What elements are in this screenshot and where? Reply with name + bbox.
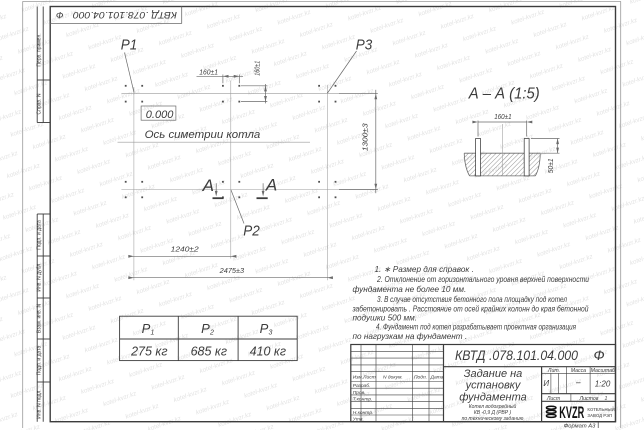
svg-text:Р1: Р1: [121, 38, 138, 54]
svg-text:Разраб.: Разраб.: [353, 383, 371, 389]
svg-text:фундамента: фундамента: [459, 391, 527, 403]
svg-text:А – А (1:5): А – А (1:5): [468, 86, 540, 103]
svg-text:А: А: [265, 175, 277, 194]
svg-text:Подп.: Подп.: [414, 375, 427, 381]
svg-text:Формат А3: Формат А3: [564, 424, 596, 430]
svg-text:–: –: [575, 378, 581, 387]
svg-text:N докум.: N докум.: [383, 375, 403, 381]
svg-text:275 кг: 275 кг: [130, 345, 167, 359]
svg-text:685 кг: 685 кг: [191, 345, 227, 359]
svg-text:КВТД .078.101.04.000: КВТД .078.101.04.000: [455, 347, 578, 363]
svg-text:2. Отклонение от горизонтально: 2. Отклонение от горизонтального уровня …: [376, 275, 589, 284]
svg-text:KVZR: KVZR: [559, 404, 584, 422]
svg-text:Т.контр.: Т.контр.: [353, 397, 373, 403]
svg-text:Дата: Дата: [430, 375, 444, 381]
svg-text:2: 2: [209, 330, 214, 337]
svg-text:КОТЕЛЬНЫЙ: КОТЕЛЬНЫЙ: [587, 407, 614, 412]
svg-text:Изм.Лист: Изм.Лист: [353, 375, 376, 381]
svg-text:Лист: Лист: [546, 396, 561, 402]
svg-text:по техническому заданию: по техническому заданию: [462, 416, 524, 422]
svg-text:160±1: 160±1: [253, 61, 262, 76]
svg-text:160±1: 160±1: [199, 68, 218, 77]
svg-text:0.000: 0.000: [146, 109, 174, 121]
svg-text:Н.контр.: Н.контр.: [353, 410, 374, 416]
svg-text:Р3: Р3: [356, 38, 373, 54]
svg-text:1. ∗ Размер для справок .: 1. ∗ Размер для справок .: [375, 265, 474, 274]
svg-text:Котел водогрейный: Котел водогрейный: [469, 403, 517, 410]
svg-text:1: 1: [151, 330, 155, 337]
svg-text:Масштаб: Масштаб: [591, 368, 616, 374]
svg-text:Справ. N: Справ. N: [37, 93, 43, 114]
svg-text:Перв. примен.: Перв. примен.: [37, 33, 43, 66]
svg-text:КВТД .078.101.04.000: КВТД .078.101.04.000: [72, 10, 177, 21]
svg-text:фундамента не более 10 мм.: фундамента не более 10 мм.: [353, 285, 467, 294]
svg-text:4. Фундамент под котел разраба: 4. Фундамент под котел разрабатывает про…: [376, 323, 576, 332]
svg-text:Ф: Ф: [594, 347, 605, 363]
svg-text:1300±3: 1300±3: [360, 123, 369, 151]
svg-text:Инв. N дубл.: Инв. N дубл.: [37, 262, 43, 291]
svg-text:Ф: Ф: [56, 10, 64, 21]
svg-text:Взам. инв. N: Взам. инв. N: [37, 304, 43, 334]
svg-text:1: 1: [604, 396, 607, 402]
svg-text:Р: Р: [201, 321, 210, 336]
svg-text:Пров.: Пров.: [353, 390, 366, 396]
svg-text:2475±3: 2475±3: [219, 266, 245, 275]
svg-text:Подп. и дата: Подп. и дата: [37, 346, 43, 376]
svg-text:Листов: Листов: [579, 396, 599, 402]
svg-text:установку: установку: [465, 380, 522, 392]
svg-text:И: И: [543, 379, 549, 388]
svg-text:Подп. и дата: Подп. и дата: [37, 220, 43, 250]
svg-text:Масса: Масса: [571, 368, 586, 374]
svg-text:Р2: Р2: [243, 224, 260, 240]
svg-text:3. В случае отсутствия бетонно: 3. В случае отсутствия бетонного пола пл…: [377, 295, 567, 304]
svg-text:Лит.: Лит.: [547, 368, 560, 374]
svg-text:ЗАВОД РЭП: ЗАВОД РЭП: [587, 413, 612, 418]
svg-text:Ось симетрии котла: Ось симетрии котла: [145, 129, 261, 141]
svg-text:160±1: 160±1: [494, 112, 511, 121]
svg-text:1240±2: 1240±2: [171, 244, 199, 253]
svg-text:3: 3: [269, 330, 273, 337]
svg-text:1:20: 1:20: [595, 380, 611, 389]
svg-text:А: А: [202, 176, 214, 195]
svg-text:забетонировать . Расстояние от: забетонировать . Расстояние от осей край…: [352, 304, 589, 313]
svg-text:50±1: 50±1: [546, 158, 555, 173]
svg-text:Р: Р: [142, 321, 151, 336]
svg-text:подушки 500 мм.: подушки 500 мм.: [353, 314, 418, 323]
svg-text:по нагрузкам на фундамент .: по нагрузкам на фундамент .: [353, 332, 468, 341]
svg-text:Инв. N подл.: Инв. N подл.: [37, 389, 43, 418]
svg-text:Р: Р: [260, 321, 269, 336]
svg-text:Утв.: Утв.: [353, 417, 364, 423]
svg-text:410 кг: 410 кг: [250, 345, 286, 359]
svg-text:Задание на: Задание на: [464, 368, 523, 380]
